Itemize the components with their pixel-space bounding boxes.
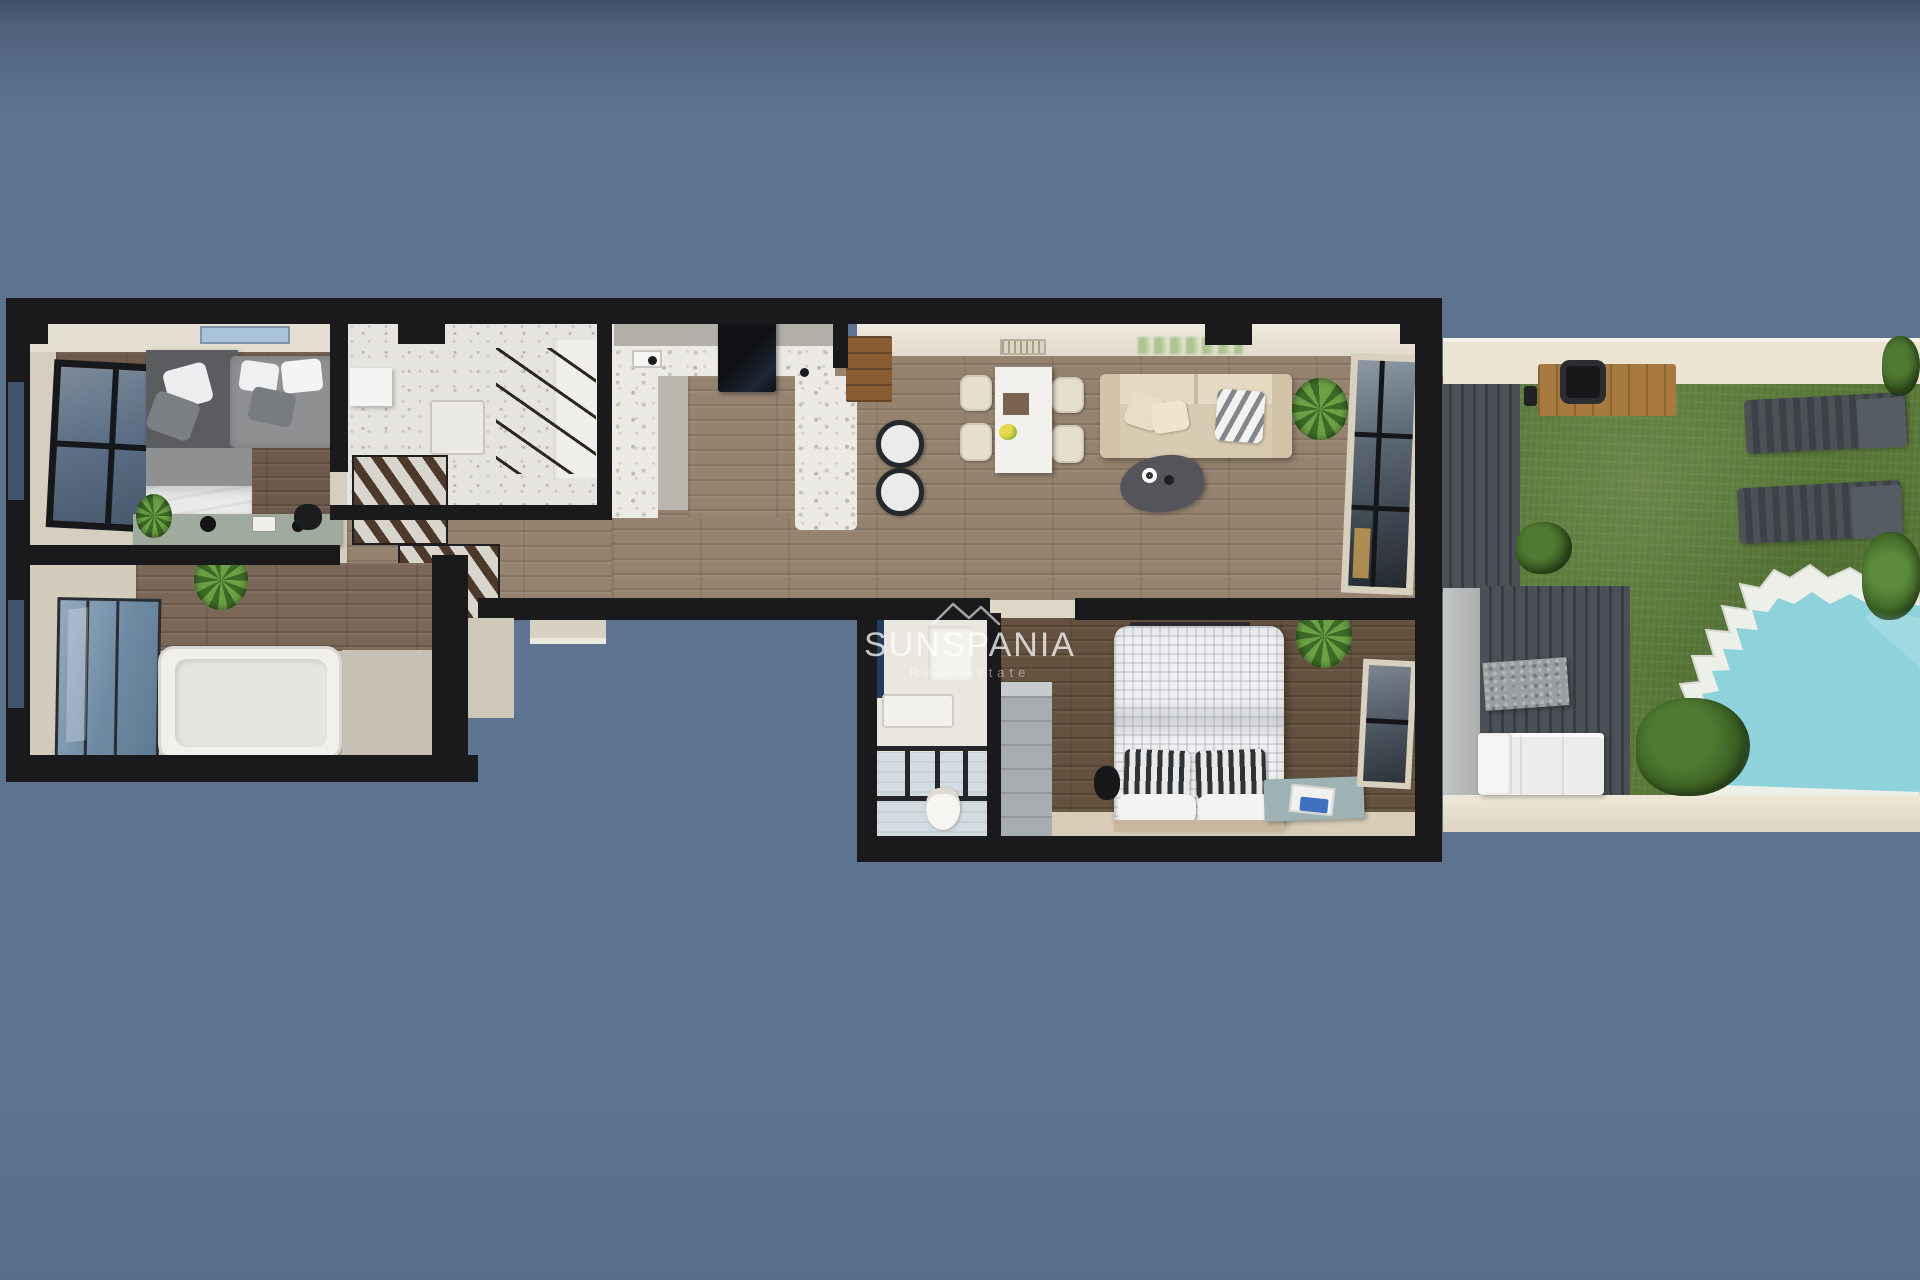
ensuite-glass-screen-h1 bbox=[876, 746, 990, 751]
kitchen-counter-left bbox=[612, 376, 658, 518]
bar-stool-1 bbox=[876, 420, 924, 468]
bar-cabinet bbox=[846, 336, 892, 402]
bedside-lamp bbox=[1094, 766, 1120, 800]
kitchen-faucet-1 bbox=[648, 356, 657, 365]
outdoor-sofa-back-cushions bbox=[1478, 733, 1512, 795]
kitchen-faucet-2 bbox=[800, 368, 809, 377]
terrace-front-wall bbox=[1443, 795, 1920, 832]
closet-side-table bbox=[430, 400, 485, 455]
wall-vent bbox=[1000, 339, 1046, 355]
desk-lamp bbox=[200, 516, 216, 532]
outdoor-side-item bbox=[1524, 386, 1537, 406]
outdoor-wooden-table bbox=[1538, 364, 1676, 416]
shower-glass-highlight bbox=[66, 607, 88, 742]
window-mullion-h2 bbox=[1351, 504, 1409, 512]
ensuite-glass-screen-v3 bbox=[963, 746, 968, 801]
dining-table bbox=[995, 367, 1052, 473]
wall-stub-top-right bbox=[1400, 324, 1418, 344]
wall-bedroom-bathroom-divider bbox=[25, 545, 340, 565]
wall-left bbox=[6, 298, 30, 782]
living-room-plant bbox=[1292, 378, 1348, 440]
wall-top bbox=[10, 298, 1442, 324]
sun-lounger-2-backrest bbox=[1851, 485, 1904, 540]
rug-remote bbox=[1164, 475, 1174, 485]
wall-living-bottom-east bbox=[1075, 598, 1418, 620]
wall-kitchen-left bbox=[597, 322, 612, 520]
dining-chair-1 bbox=[960, 375, 992, 411]
fruit-bowl bbox=[999, 424, 1017, 440]
skylight bbox=[200, 326, 290, 344]
left-wall-window-2 bbox=[8, 600, 24, 708]
sofa-armrest-left bbox=[1100, 374, 1120, 458]
wall-bedroom-closet bbox=[330, 322, 348, 472]
sofa-pillow-2 bbox=[1150, 399, 1191, 435]
dining-chair-3 bbox=[1052, 377, 1084, 413]
ensuite-toilet bbox=[926, 788, 960, 830]
mountain-roofline-icon bbox=[927, 598, 1013, 628]
terrace-pillar bbox=[1443, 588, 1483, 795]
outdoor-black-chair bbox=[1560, 360, 1606, 404]
family-bathroom-floor-patch bbox=[342, 650, 432, 757]
twin-bed-a-pillow-2 bbox=[280, 358, 323, 394]
twin-bed-b-gray-top bbox=[146, 448, 252, 490]
master-bed-base bbox=[1114, 820, 1284, 832]
bar-stool-2 bbox=[876, 468, 924, 516]
left-wall-window-1 bbox=[8, 382, 24, 500]
ensuite-vanity-sink bbox=[882, 694, 954, 728]
entry-step bbox=[530, 620, 606, 644]
wall-kitchen-right-stub bbox=[833, 322, 848, 368]
desk-book bbox=[252, 516, 276, 532]
shower-glass-divider-2 bbox=[114, 601, 120, 767]
wall-stub-living bbox=[1205, 324, 1252, 345]
window-mullion-v1 bbox=[1370, 361, 1385, 587]
bathtub bbox=[158, 646, 342, 760]
dining-chair-4 bbox=[1052, 425, 1084, 463]
watermark: SUNSPANIA Real estate bbox=[830, 598, 1110, 680]
window-mullion-h bbox=[57, 440, 151, 451]
bench-laptop bbox=[1299, 797, 1328, 814]
master-window-mullion bbox=[1366, 718, 1408, 725]
kitchen-aisle-floor bbox=[688, 376, 795, 518]
ensuite-glass-screen-v1 bbox=[905, 746, 910, 801]
master-pillow-striped-1 bbox=[1123, 749, 1191, 799]
secondary-bedroom-ceiling-band bbox=[25, 322, 347, 352]
dining-placemat bbox=[1003, 393, 1029, 415]
watermark-tagline: Real estate bbox=[830, 665, 1110, 680]
terrace-back-wall bbox=[1443, 338, 1920, 384]
wall-bottom-left bbox=[6, 755, 478, 782]
pergola-louvre-strip bbox=[1440, 375, 1520, 592]
bathtub-basin bbox=[175, 659, 327, 747]
master-pillow-striped-2 bbox=[1195, 749, 1267, 799]
outdoor-coffee-table bbox=[1482, 657, 1569, 711]
bedroom-plant bbox=[136, 494, 172, 538]
rug-cup bbox=[1142, 468, 1157, 483]
wall-closet-bottom bbox=[330, 505, 612, 520]
watermark-brand: SUNSPANIA bbox=[830, 628, 1110, 662]
living-back-wall-face bbox=[857, 322, 1415, 356]
poolside-palm bbox=[1862, 532, 1920, 620]
master-bed-fold-shadow bbox=[1114, 700, 1284, 740]
closet-wall-cabinet bbox=[350, 368, 392, 406]
wall-bathroom-right bbox=[432, 555, 468, 782]
exterior-wall-face bbox=[468, 618, 514, 718]
window-mullion-h1 bbox=[1355, 432, 1413, 440]
wall-stub-closet bbox=[398, 324, 445, 344]
wall-master-bottom bbox=[857, 836, 1442, 862]
shower-glass-enclosure bbox=[55, 597, 162, 771]
sun-lounger-1-backrest bbox=[1857, 397, 1908, 449]
kitchen-sink bbox=[632, 350, 662, 368]
floor-plan-render: SUNSPANIA Real estate bbox=[0, 0, 1920, 1280]
wall-right bbox=[1415, 298, 1442, 862]
living-room-tall-window bbox=[1341, 353, 1423, 596]
dining-chair-2 bbox=[960, 423, 992, 461]
sofa-chevron-pillow bbox=[1214, 388, 1266, 443]
kitchen-counter-left-face bbox=[658, 376, 688, 510]
wall-stub-bedroom bbox=[30, 324, 48, 344]
stair-flight-upper bbox=[352, 455, 448, 545]
window-amber-light bbox=[1352, 528, 1370, 579]
family-bathroom-wood-strip bbox=[136, 563, 432, 651]
sofa-armrest-right bbox=[1272, 374, 1292, 458]
clothes-rails bbox=[496, 348, 596, 474]
desk-chair bbox=[294, 504, 322, 530]
master-bedroom-window bbox=[1357, 659, 1418, 790]
